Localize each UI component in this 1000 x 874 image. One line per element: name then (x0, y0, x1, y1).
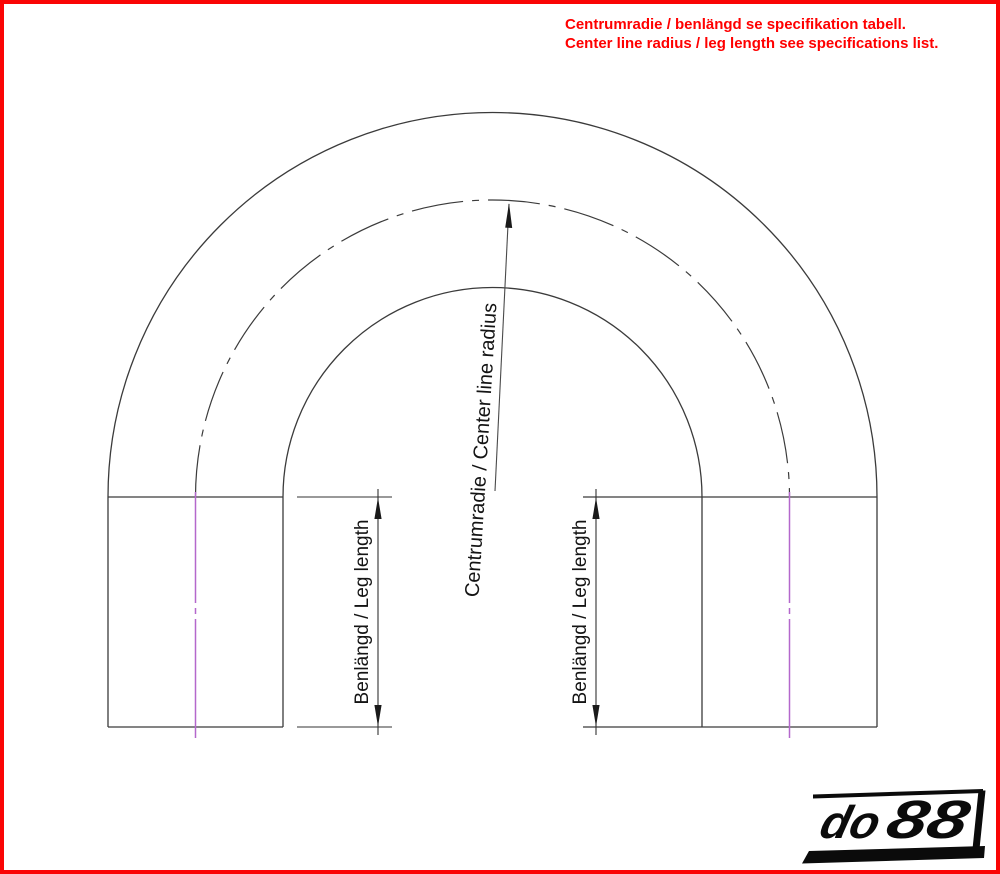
logo-text-88: 88 (881, 789, 977, 850)
dimension-left-arrow-up (374, 498, 381, 520)
dimension-left-arrow-down (374, 705, 381, 727)
annotation-line-swedish: Centrumradie / benlängd se specifikation… (565, 15, 938, 34)
leg-length-label-left: Benlängd / Leg length (352, 520, 374, 705)
logo-right-bar (973, 791, 986, 850)
dimension-right-arrow-up (592, 498, 599, 520)
do88-logo: do 88 (800, 785, 990, 865)
dimension-left-leg (297, 489, 392, 735)
right-leg-end-lines (583, 497, 877, 727)
drawing-page: Centrumradie / benlängd se specifikation… (0, 0, 1000, 874)
bend-diagram (0, 0, 1000, 874)
annotation-line-english: Center line radius / leg length see spec… (565, 34, 938, 53)
dimension-right-leg (592, 489, 599, 735)
leg-length-label-right: Benlängd / Leg length (570, 520, 592, 705)
leg-centerlines (196, 492, 790, 738)
logo-text-do: do (815, 797, 886, 848)
dimension-right-arrow-down (592, 705, 599, 727)
annotation-note: Centrumradie / benlängd se specifikation… (565, 15, 938, 53)
leg-edges (108, 497, 877, 727)
radius-arrowhead (505, 203, 512, 228)
